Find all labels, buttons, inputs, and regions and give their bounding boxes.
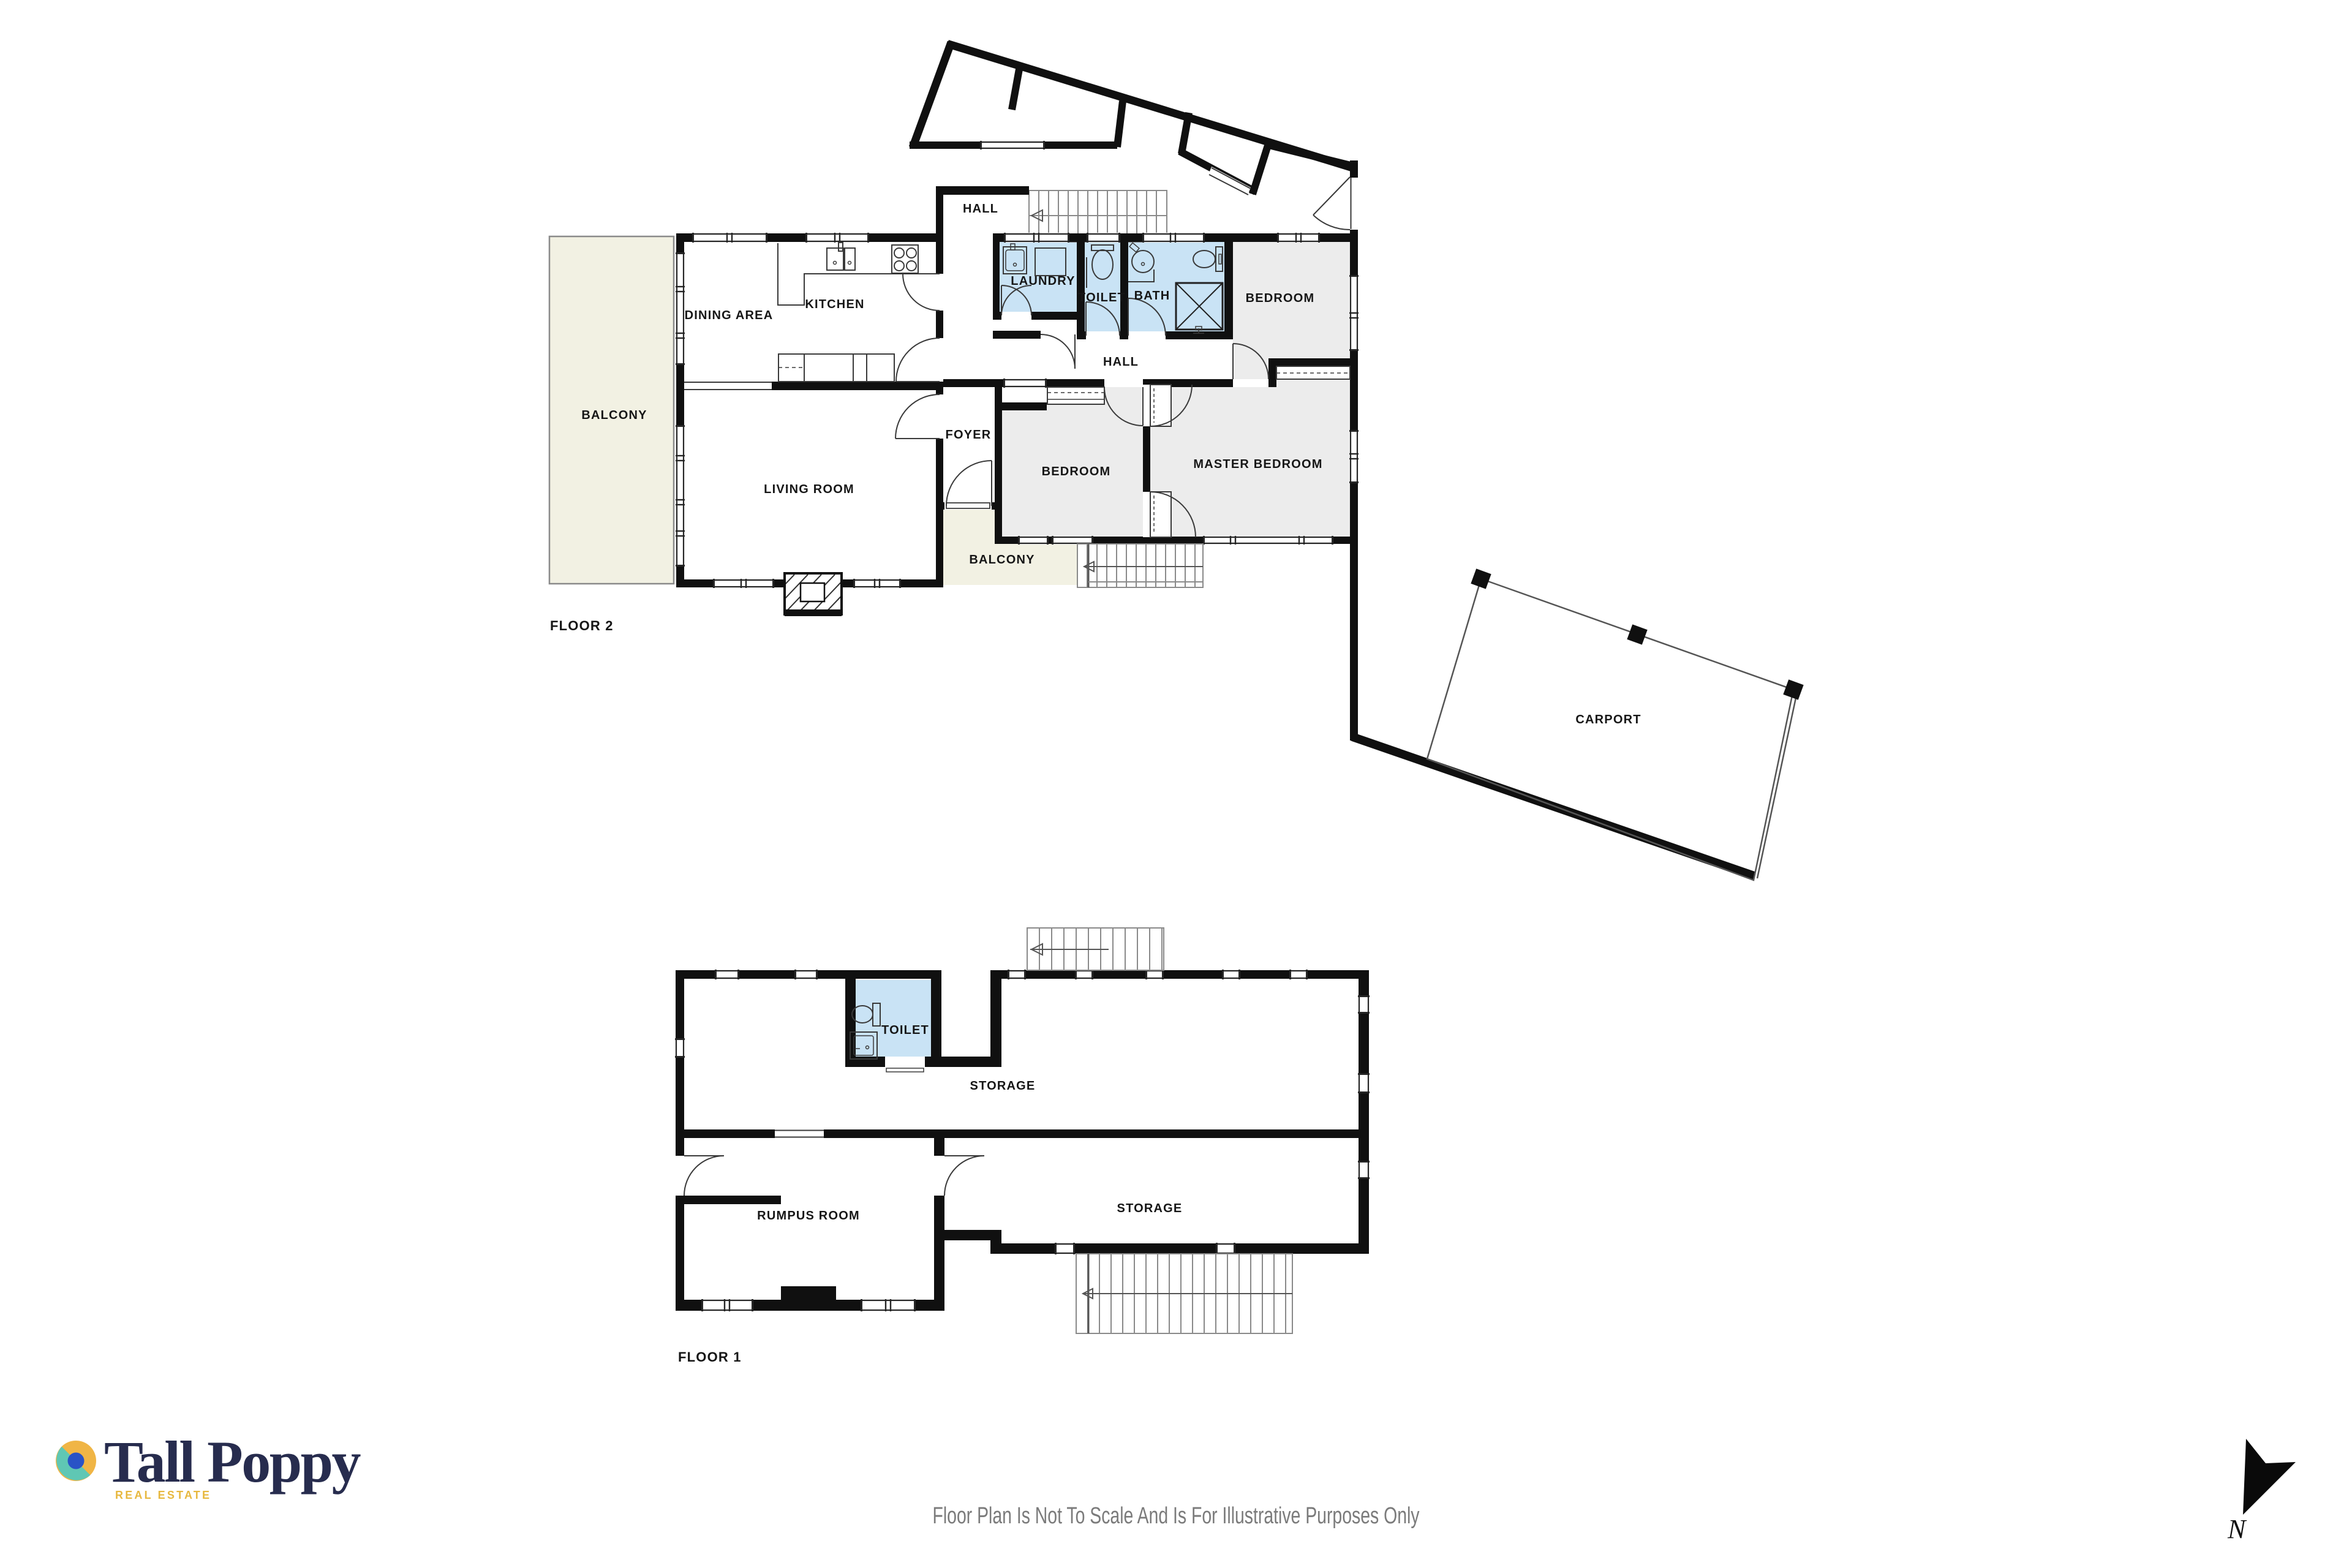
svg-text:RUMPUS ROOM: RUMPUS ROOM [757,1209,860,1223]
svg-text:DINING AREA: DINING AREA [685,309,774,322]
svg-text:FOYER: FOYER [946,428,992,442]
svg-text:STORAGE: STORAGE [1117,1202,1183,1215]
svg-text:BEDROOM: BEDROOM [1246,292,1315,305]
svg-text:N: N [2227,1514,2247,1544]
svg-text:BALCONY: BALCONY [969,553,1035,567]
svg-text:FLOOR 2: FLOOR 2 [550,618,614,633]
svg-text:LIVING ROOM: LIVING ROOM [764,483,854,496]
svg-text:TOILET: TOILET [881,1023,929,1037]
svg-text:BEDROOM: BEDROOM [1042,465,1111,478]
svg-text:HALL: HALL [963,202,998,216]
svg-text:BALCONY: BALCONY [581,409,647,422]
svg-text:REAL ESTATE: REAL ESTATE [115,1489,211,1501]
svg-text:LAUNDRY: LAUNDRY [1011,274,1075,288]
svg-text:HALL: HALL [1103,355,1139,369]
svg-text:KITCHEN: KITCHEN [805,298,864,311]
svg-text:CARPORT: CARPORT [1575,713,1641,726]
svg-text:TOILET: TOILET [1078,291,1126,304]
svg-text:BATH: BATH [1134,289,1170,303]
svg-text:Floor Plan Is Not To Scale And: Floor Plan Is Not To Scale And Is For Il… [933,1503,1420,1529]
svg-text:MASTER BEDROOM: MASTER BEDROOM [1193,458,1322,471]
svg-text:STORAGE: STORAGE [970,1079,1036,1093]
svg-text:FLOOR 1: FLOOR 1 [678,1349,742,1365]
svg-text:Tall Poppy: Tall Poppy [104,1429,361,1494]
